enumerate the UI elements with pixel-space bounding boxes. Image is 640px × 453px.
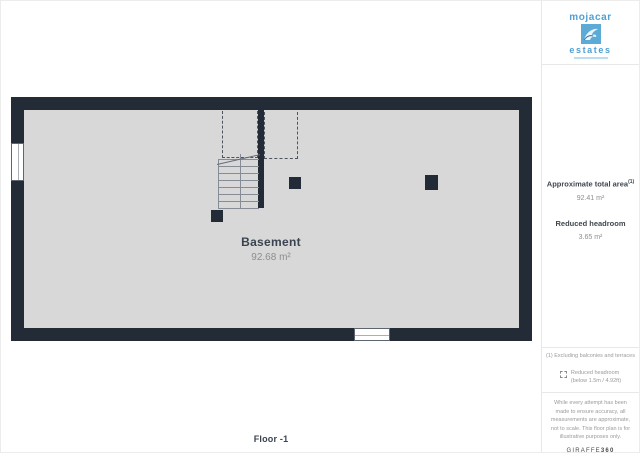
agency-brand-subname: estates xyxy=(542,45,639,55)
pillar xyxy=(289,177,301,189)
disclaimer-section: While every attempt has been made to ens… xyxy=(542,392,639,452)
giraffe360-brand: GIRAFFE360 xyxy=(549,448,632,453)
staircase-treads xyxy=(218,159,259,209)
legend-text: Reduced headroom (below 1.5m / 4.92ft) xyxy=(571,370,621,386)
giraffe360-brand-number: 360 xyxy=(601,448,615,453)
approx-area-label: Approximate total area(1) xyxy=(542,179,639,189)
approx-area-footnote-marker: (1) xyxy=(628,179,634,185)
reduced-headroom-value: 3.65 m² xyxy=(542,234,639,241)
floorplan-page: Basement 92.68 m² Floor -1 mojacar estat… xyxy=(0,0,640,453)
room-name: Basement xyxy=(121,235,421,249)
area-footnote: (1) Excluding balconies and terraces xyxy=(542,353,639,359)
reduced-headroom-zone-right xyxy=(264,112,298,159)
window-pane-line xyxy=(355,335,389,336)
pillar xyxy=(211,210,223,222)
footnotes-section: (1) Excluding balconies and terraces Red… xyxy=(542,347,639,386)
approx-area-value: 92.41 m² xyxy=(542,195,639,202)
agency-tagline-line xyxy=(574,57,608,59)
room-label: Basement 92.68 m² xyxy=(121,235,421,263)
agency-logo-mark-icon xyxy=(581,24,601,44)
legend-line-2: (below 1.5m / 4.92ft) xyxy=(571,378,621,386)
window-bottom-wall xyxy=(354,328,390,341)
reduced-headroom-zone-left xyxy=(222,111,258,158)
floor-number-label: Floor -1 xyxy=(1,434,541,444)
staircase-center-rail xyxy=(240,154,241,208)
legend-line-1: Reduced headroom xyxy=(571,370,621,378)
room-area-value: 92.68 m² xyxy=(121,252,421,263)
agency-brand-name: mojacar xyxy=(542,12,639,23)
window-left-wall xyxy=(11,143,24,181)
window-pane-line xyxy=(18,144,19,180)
plan-area: Basement 92.68 m² Floor -1 xyxy=(1,1,541,452)
sidebar: mojacar estates Approximate total area(1… xyxy=(541,1,639,452)
dashed-area-swatch-icon xyxy=(560,371,567,378)
reduced-headroom-label: Reduced headroom xyxy=(542,219,639,228)
disclaimer-text: While every attempt has been made to ens… xyxy=(549,399,632,442)
agency-logo: mojacar estates xyxy=(542,1,639,65)
approx-area-label-text: Approximate total area xyxy=(547,180,628,189)
area-summary: Approximate total area(1) 92.41 m² Reduc… xyxy=(542,179,639,241)
giraffe360-brand-name: GIRAFFE xyxy=(566,448,600,453)
pillar xyxy=(425,175,438,190)
reduced-headroom-legend: Reduced headroom (below 1.5m / 4.92ft) xyxy=(542,370,639,386)
